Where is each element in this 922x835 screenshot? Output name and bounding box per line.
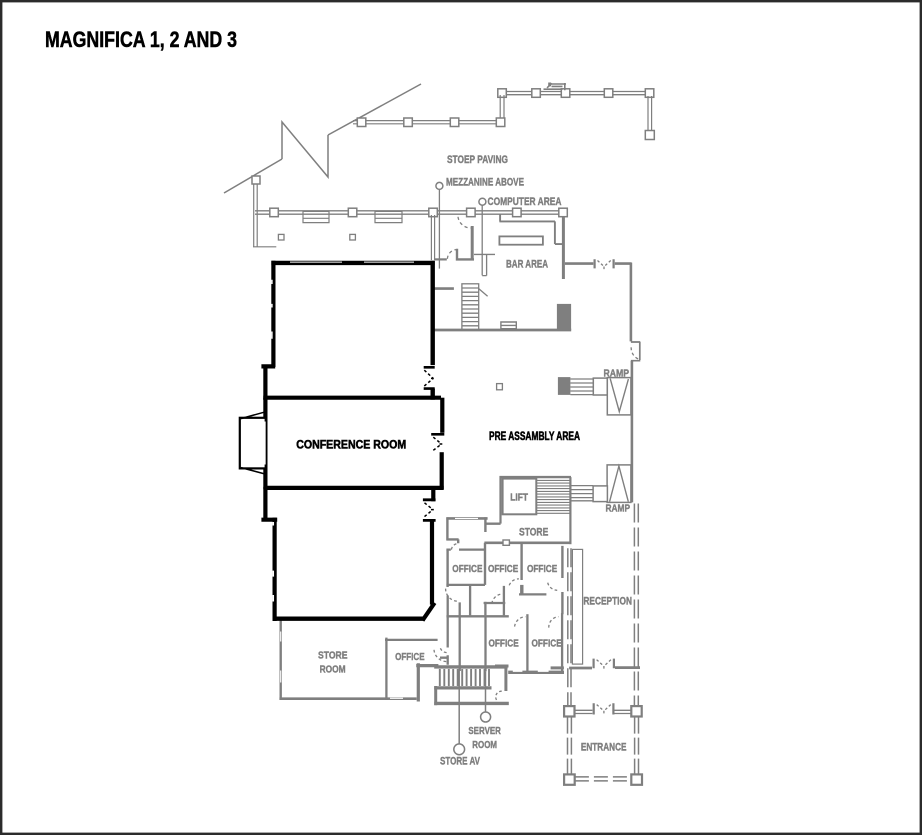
- svg-text:ENTRANCE: ENTRANCE: [581, 741, 627, 753]
- svg-text:MAGNIFICA 1, 2 AND 3: MAGNIFICA 1, 2 AND 3: [45, 27, 237, 52]
- svg-text:RECEPTION: RECEPTION: [583, 596, 632, 608]
- svg-text:STORE AV: STORE AV: [440, 755, 481, 767]
- svg-text:OFFICE: OFFICE: [452, 564, 482, 575]
- svg-text:ROOM: ROOM: [320, 664, 346, 675]
- svg-text:ROOM: ROOM: [472, 740, 497, 751]
- svg-text:COMPUTER AREA: COMPUTER AREA: [488, 196, 562, 208]
- svg-text:OFFICE: OFFICE: [527, 564, 557, 575]
- svg-text:OFFICE: OFFICE: [532, 639, 562, 650]
- svg-text:STORE: STORE: [318, 650, 348, 661]
- svg-text:LIFT: LIFT: [510, 493, 528, 504]
- svg-text:CONFERENCE ROOM: CONFERENCE ROOM: [296, 437, 406, 451]
- svg-text:STOEP PAVING: STOEP PAVING: [447, 154, 508, 166]
- svg-text:BAR AREA: BAR AREA: [506, 259, 548, 271]
- svg-text:SERVER: SERVER: [468, 726, 501, 737]
- svg-text:OFFICE: OFFICE: [395, 652, 425, 663]
- svg-text:OFFICE: OFFICE: [488, 564, 518, 575]
- svg-text:RAMP: RAMP: [604, 368, 630, 379]
- svg-text:OFFICE: OFFICE: [489, 639, 519, 650]
- svg-text:MEZZANINE ABOVE: MEZZANINE ABOVE: [446, 177, 524, 189]
- svg-text:STORE: STORE: [519, 526, 548, 538]
- svg-text:RAMP: RAMP: [606, 503, 631, 514]
- svg-text:PRE ASSAMBLY AREA: PRE ASSAMBLY AREA: [489, 429, 580, 443]
